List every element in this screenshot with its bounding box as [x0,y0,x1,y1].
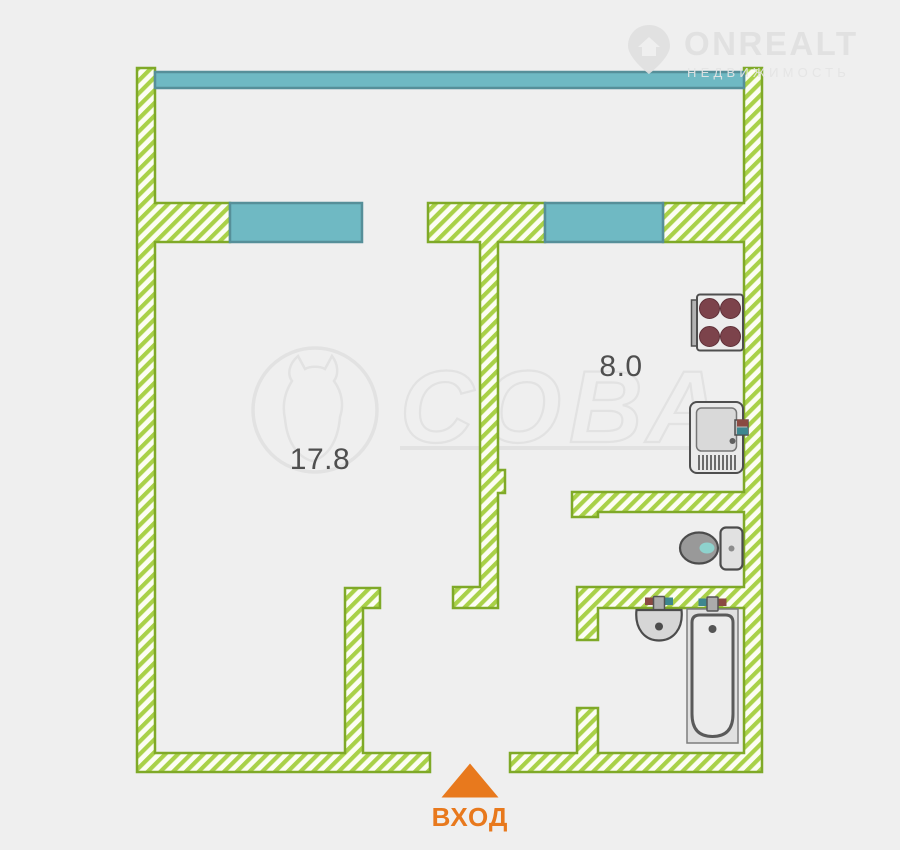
water-heater-icon [690,402,748,473]
entrance-arrow-icon [442,764,499,798]
toilet-flush-button [729,546,735,552]
sova-underline [400,446,692,450]
bathtub-inner [692,615,733,737]
cold-tap-mark [737,428,748,435]
room-label-living: 17.8 [275,443,365,477]
bathtub-drain [709,625,717,633]
water-heater-knob [730,438,736,444]
bathtub-hot-tap [718,599,727,607]
room-label-kitchen: 8.0 [576,350,666,384]
sink-drain [655,623,663,631]
sink-cold-tap [664,598,673,606]
toilet-icon [680,528,743,570]
living-room-window [230,203,362,242]
hot-tap-mark [737,420,748,427]
bathtub-cold-tap [699,599,708,607]
kitchen-window [545,203,663,242]
floor-plan-drawing: СОВА [0,0,900,850]
bathtub-spout [707,597,718,611]
wall-left-outline [137,68,430,772]
toilet-water [700,543,715,554]
sink-hot-tap [645,598,654,606]
onrealt-subtitle-text: НЕДВИЖИМОСТЬ [687,65,850,80]
floor-plan-canvas: СОВА [0,0,900,850]
onrealt-logo: ONREALT НЕДВИЖИМОСТЬ [620,24,890,94]
home-pin-icon [627,25,671,75]
bathtub-icon [687,597,738,743]
water-heater-panel [697,408,737,451]
onrealt-brand-text: ONREALT [684,25,859,63]
entrance-label: ВХОД [410,802,530,833]
stove-icon [692,295,744,351]
